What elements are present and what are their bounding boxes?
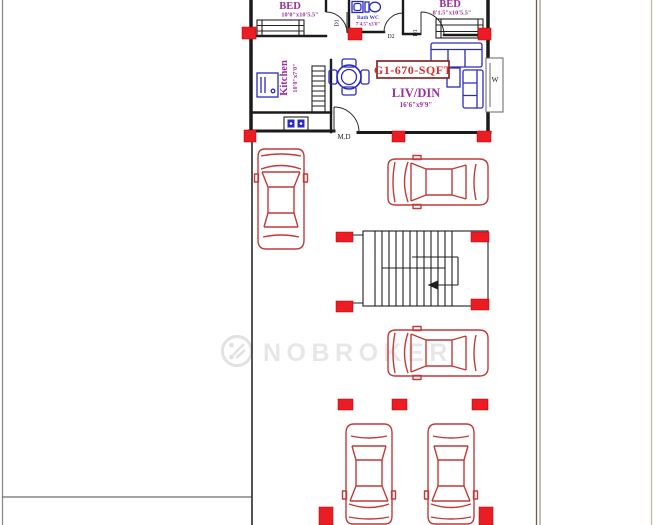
bed1-bed-icon xyxy=(257,20,304,36)
floorplan-page: NOBROKER xyxy=(0,0,655,525)
kitchen-furniture xyxy=(257,66,325,130)
living-room-label: LIV/DIN xyxy=(392,86,441,100)
parking-area xyxy=(252,131,493,525)
staircase xyxy=(352,231,488,306)
main-door-arc xyxy=(334,107,359,132)
watermark-text: NOBROKER xyxy=(263,339,453,367)
column xyxy=(348,28,362,40)
bath-dims-label: 7'4.5"x3'0" xyxy=(356,23,381,28)
column xyxy=(392,131,405,142)
watermark-logo-dot2 xyxy=(229,355,234,360)
watermark: NOBROKER xyxy=(223,337,453,368)
unit-area-label: G1-670-SQFT xyxy=(374,63,452,77)
bath-door-label: D2 xyxy=(387,34,394,40)
living-dims-label: 16'6"x9'9" xyxy=(400,101,433,109)
dining-table-icon xyxy=(329,59,369,95)
column xyxy=(338,399,353,410)
column xyxy=(336,232,353,242)
kitchen-counter xyxy=(312,66,325,112)
bath-fixtures xyxy=(352,2,381,13)
column xyxy=(478,28,491,40)
kitchen-room-label: Kitchen xyxy=(279,60,290,96)
toilet-icon xyxy=(370,2,381,12)
column xyxy=(479,507,493,525)
window-label: W xyxy=(491,75,499,84)
car-icon xyxy=(255,149,308,249)
column xyxy=(392,399,407,410)
fridge-icon xyxy=(257,73,278,97)
car-icon xyxy=(425,424,478,524)
bed1-dims-label: 10'0"x10'5.5" xyxy=(281,12,318,19)
column xyxy=(242,27,256,39)
bed2-room-label: BED xyxy=(439,0,461,10)
kitchen-dims-label: 10'0"x7'0" xyxy=(292,63,299,92)
car-icon xyxy=(388,156,488,209)
column xyxy=(471,232,489,242)
bed2-dims-label: 8'1.5"x10'5.5" xyxy=(433,10,472,17)
column xyxy=(471,299,489,310)
floorplan-canvas: NOBROKER xyxy=(0,0,655,525)
window-marker: W xyxy=(486,58,503,112)
main-door-label: M.D xyxy=(337,133,350,141)
column xyxy=(477,131,491,142)
watermark-logo-dot xyxy=(229,343,234,348)
bed1-room-label: BED xyxy=(279,1,301,12)
bath-door-arc xyxy=(384,13,403,32)
watermark-logo-mark xyxy=(233,344,245,358)
bath-room-label: Bath WC xyxy=(357,15,379,21)
stair-direction-arrow-icon xyxy=(429,282,437,289)
unit-area-badge: G1-670-SQFT xyxy=(374,61,452,78)
bed1-door-label: D1 xyxy=(335,19,341,26)
column xyxy=(244,130,256,142)
bed2-door-label: D1 xyxy=(413,29,419,36)
car-icon xyxy=(343,424,396,524)
column xyxy=(319,507,333,525)
toilet-tank-icon xyxy=(365,2,369,12)
stove-icon xyxy=(284,117,308,130)
column xyxy=(472,399,488,410)
column xyxy=(336,301,353,312)
building: D1 D2 D1 M.D W xyxy=(242,0,503,142)
